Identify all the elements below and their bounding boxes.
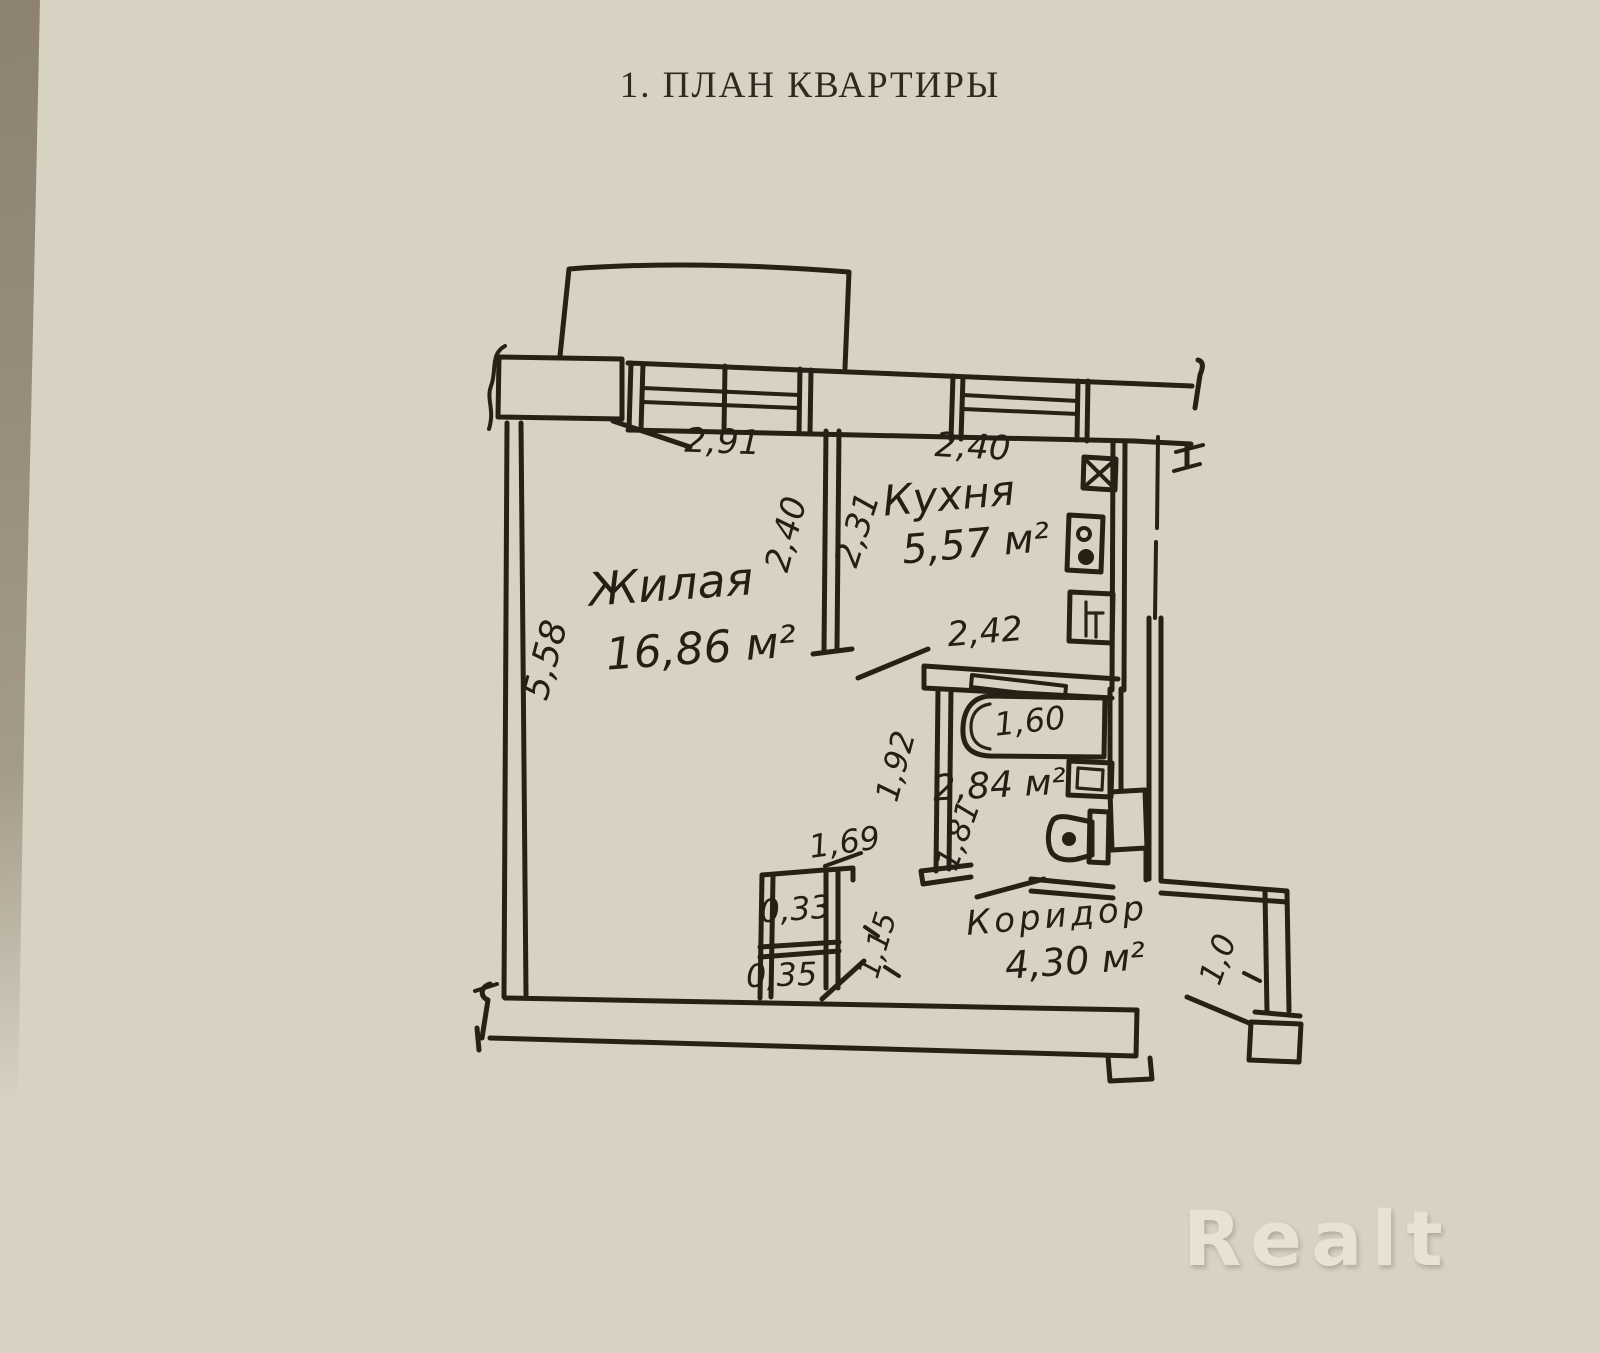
- dim-living-window: 2,91: [684, 421, 761, 464]
- dim-closet-lower-cell: 0,35: [745, 955, 818, 995]
- window-glazing-lines: [963, 395, 1078, 414]
- wall-stub: [1134, 441, 1191, 467]
- toilet-drain: [1062, 832, 1076, 846]
- wall-foot: [1255, 1012, 1300, 1016]
- sink-body: [1069, 592, 1113, 643]
- balcony-door-swing: [613, 421, 690, 447]
- kitchen-door-swing: [858, 649, 928, 678]
- sink-inner: [1086, 602, 1103, 637]
- dim-partition-living-side: 2,40: [757, 492, 815, 575]
- corridor-door-swing: [977, 879, 1044, 897]
- washbasin-inner: [1077, 768, 1103, 790]
- closet-right-wall: [826, 868, 853, 988]
- realt-watermark-logo: Realt: [1183, 1194, 1452, 1283]
- wall-end-hook: [1195, 360, 1202, 408]
- balcony: [560, 265, 849, 368]
- bathtub-inner: [971, 704, 990, 749]
- washbasin-outline: [1068, 761, 1112, 797]
- kitchen-sink-icon: [1069, 592, 1113, 643]
- dim-closet-front: 1,69: [807, 818, 883, 866]
- dim-closet-side: 1,15: [851, 908, 904, 982]
- window-glazing-lines: [643, 388, 799, 408]
- balcony-outline: [560, 265, 849, 368]
- dim-tick: [1244, 973, 1260, 981]
- kitchen-area: 5,57 м²: [900, 515, 1051, 574]
- dim-kitchen-window: 2,40: [934, 425, 1012, 469]
- dim-entry-door: 1,0: [1191, 929, 1244, 990]
- washbasin-icon: [1068, 761, 1112, 797]
- wall-line: [504, 423, 526, 997]
- wall-step: [1110, 790, 1147, 880]
- photographed-floor-plan-page: { "title": "1. ПЛАН КВАРТИРЫ", "watermar…: [0, 0, 1600, 1353]
- kitchen-label: Кухня: [881, 465, 1017, 525]
- stove-icon: [1067, 515, 1103, 572]
- dim-bathtub: 1,60: [992, 698, 1067, 743]
- corridor-area: 4,30 м²: [1003, 934, 1146, 988]
- wall-line-broken: [1155, 437, 1158, 618]
- wall-block: [498, 357, 622, 419]
- dim-bathroom-top: 2,42: [946, 609, 1025, 655]
- stove-burner: [1078, 528, 1090, 540]
- dim-closet-upper-cell: 0,33: [758, 888, 832, 931]
- dim-bathroom-left: 1,92: [868, 727, 923, 806]
- exterior-wall-right: [1149, 437, 1161, 879]
- wall-line: [1161, 881, 1287, 902]
- wall-line: [1149, 618, 1161, 879]
- exterior-wall-bottom: [477, 984, 1152, 1081]
- wall-right-end: [1108, 1010, 1152, 1081]
- closet-top: [762, 870, 824, 875]
- wall-line: [1265, 891, 1289, 1013]
- wall-line: [628, 363, 1192, 386]
- toilet-icon: [1048, 811, 1109, 863]
- floor-plan-drawing: Жилая 16,86 м² Кухня 5,57 м² 2,84 м² Кор…: [0, 0, 1600, 1353]
- living-room-label: Жилая: [584, 551, 755, 617]
- living-room-area: 16,86 м²: [604, 616, 798, 680]
- wall-cap: [813, 649, 852, 654]
- entry-door-swing: [1187, 997, 1249, 1023]
- entry-door-pier: [1249, 1022, 1301, 1062]
- wall-left-end: [477, 984, 490, 1050]
- stove-burner: [1078, 549, 1094, 565]
- wall-line: [490, 998, 1137, 1056]
- exterior-wall-left: [475, 423, 526, 997]
